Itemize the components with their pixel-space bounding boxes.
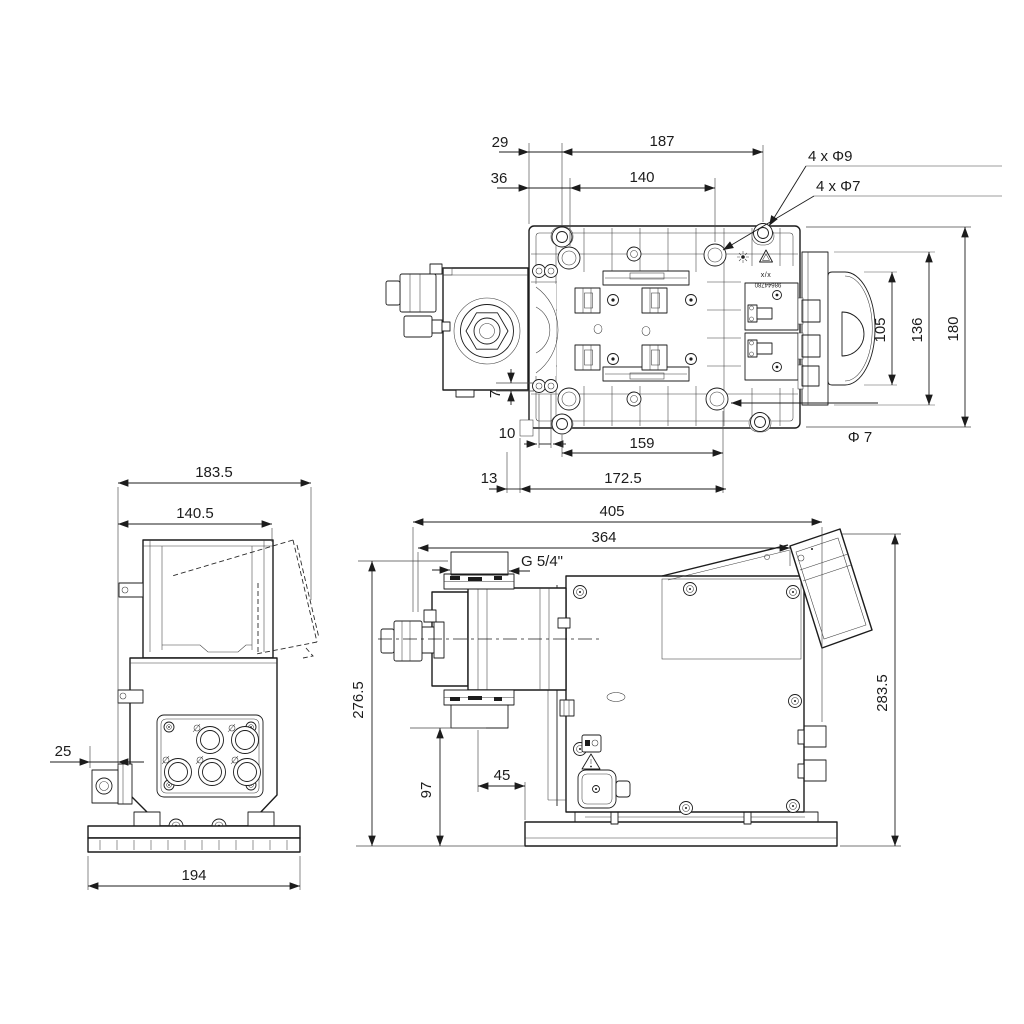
dim-label-159: 159 [629,435,654,452]
dim-label-105: 105 [872,317,889,342]
discharge-port [444,690,514,728]
dim-label-10: 10 [499,425,516,442]
dim-label-7: 7 [487,390,504,398]
dim-label-140: 140 [629,169,654,186]
side-view: 405 364 G 5/4" 276.5 97 45 283.5 [350,503,901,846]
dim-label-phi7: Φ 7 [848,429,872,446]
dim-label-29: 29 [492,134,509,151]
mounting-plate: x/x 98644780 [520,224,800,437]
top-view: x/x 98644780 [386,133,1002,493]
dim-label-187: 187 [649,133,674,150]
suction-port [444,552,514,589]
leader-label-4xphi7: 4 x Φ7 [816,178,861,195]
dim-label-45: 45 [494,767,511,784]
mounting-rail-top [603,271,689,285]
dim-label-364: 364 [591,529,616,546]
pump-head-top-view [386,264,528,397]
leader-label-4xphi9: 4 x Φ9 [808,148,853,165]
dim-label-97: 97 [418,782,435,799]
base-plate-side [525,808,837,846]
control-interface-top-view [798,252,875,405]
mounting-bracket [92,764,132,804]
dim-label-36: 36 [491,170,508,187]
dim-label-13: 13 [481,470,498,487]
rotary-cover [828,272,875,385]
cable-gland-side [381,610,444,661]
plate-marking: x/x [761,272,771,279]
dim-label-thread: G 5/4" [521,553,563,570]
dim-label-276-5: 276.5 [350,681,367,719]
dim-label-405: 405 [599,503,624,520]
dim-label-183-5: 183.5 [195,464,233,481]
dim-label-180: 180 [945,316,962,341]
pump-body-front [118,658,277,833]
dimensional-drawing-canvas: x/x 98644780 [0,0,1024,1024]
cable-gland-top-view [386,264,442,312]
dim-label-194: 194 [181,867,206,884]
base-plate-front [88,826,300,852]
dim-label-283-5: 283.5 [874,674,891,712]
pump-body-side [548,545,826,815]
dim-label-136: 136 [909,317,926,342]
terminal-panel [157,715,263,797]
front-view: 183.5 140.5 25 194 [50,464,319,890]
dim-label-172-5: 172.5 [604,470,642,487]
dim-label-25: 25 [55,743,72,760]
fan-housing-front [119,540,273,658]
plate-part-number: 98644780 [754,281,781,287]
dim-label-140-5: 140.5 [176,505,214,522]
